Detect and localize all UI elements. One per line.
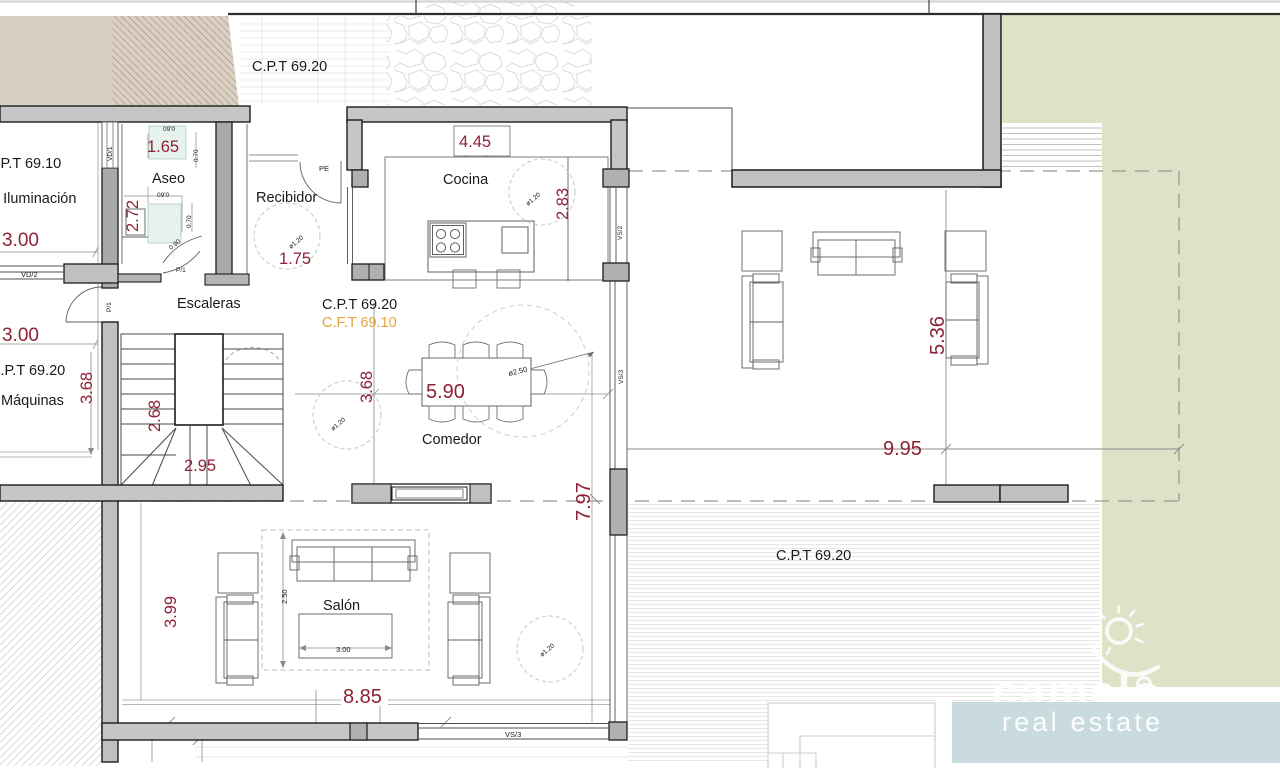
svg-text:2.83: 2.83 <box>554 188 572 220</box>
svg-text:2.68: 2.68 <box>146 400 164 432</box>
svg-text:3.00: 3.00 <box>336 645 351 654</box>
svg-text:P/1: P/1 <box>176 267 186 274</box>
svg-text:C.P.T 69.20: C.P.T 69.20 <box>776 548 851 564</box>
svg-text:3.99: 3.99 <box>162 596 180 628</box>
svg-text:5.90: 5.90 <box>426 381 465 403</box>
svg-text:1.65: 1.65 <box>147 138 179 156</box>
svg-text:C.P.T 69.20: C.P.T 69.20 <box>252 59 327 75</box>
svg-text:VS/3: VS/3 <box>505 730 521 739</box>
svg-text:4.45: 4.45 <box>459 133 491 151</box>
svg-text:Salón: Salón <box>323 598 360 614</box>
svg-text:8.85: 8.85 <box>343 686 382 708</box>
svg-text:VS/2: VS/2 <box>617 226 624 240</box>
svg-text:2.95: 2.95 <box>184 457 216 475</box>
svg-text:Escaleras: Escaleras <box>177 296 241 312</box>
svg-text:2.50: 2.50 <box>280 589 289 604</box>
svg-text:C.P.T 69.20: C.P.T 69.20 <box>322 297 397 313</box>
svg-text:0.70: 0.70 <box>193 149 200 162</box>
svg-text:3.00: 3.00 <box>2 230 39 251</box>
svg-text:VD/1: VD/1 <box>107 146 114 161</box>
svg-text:e Iluminación: e Iluminación <box>0 191 76 207</box>
svg-text:VD/2: VD/2 <box>21 270 38 279</box>
svg-text:Recibidor: Recibidor <box>256 190 317 206</box>
svg-text:1.75: 1.75 <box>279 250 311 268</box>
svg-text:P/1: P/1 <box>106 302 113 312</box>
svg-text:0.70: 0.70 <box>186 215 193 228</box>
svg-text:09'0: 09'0 <box>163 126 175 133</box>
svg-text:5.36: 5.36 <box>927 316 949 355</box>
svg-text:PE: PE <box>319 164 329 173</box>
svg-text:2.72: 2.72 <box>124 200 142 232</box>
svg-text:3.00: 3.00 <box>2 325 39 346</box>
svg-text:C.P.T 69.10: C.P.T 69.10 <box>0 156 61 172</box>
svg-text:C.P.T 69.20: C.P.T 69.20 <box>0 363 65 379</box>
svg-text:09'0: 09'0 <box>157 192 169 199</box>
svg-text:Comedor: Comedor <box>422 432 482 448</box>
svg-text:3.68: 3.68 <box>358 371 376 403</box>
svg-text:7.97: 7.97 <box>573 482 595 521</box>
svg-text:3.68: 3.68 <box>78 372 96 404</box>
svg-text:Aseo: Aseo <box>152 171 185 187</box>
svg-text:Máquinas: Máquinas <box>1 393 64 409</box>
svg-text:real estate: real estate <box>1002 707 1163 737</box>
svg-text:C.F.T 69.10: C.F.T 69.10 <box>322 315 397 331</box>
svg-text:Cocina: Cocina <box>443 172 489 188</box>
svg-text:VS/3: VS/3 <box>618 370 625 384</box>
svg-text:9.95: 9.95 <box>883 438 922 460</box>
